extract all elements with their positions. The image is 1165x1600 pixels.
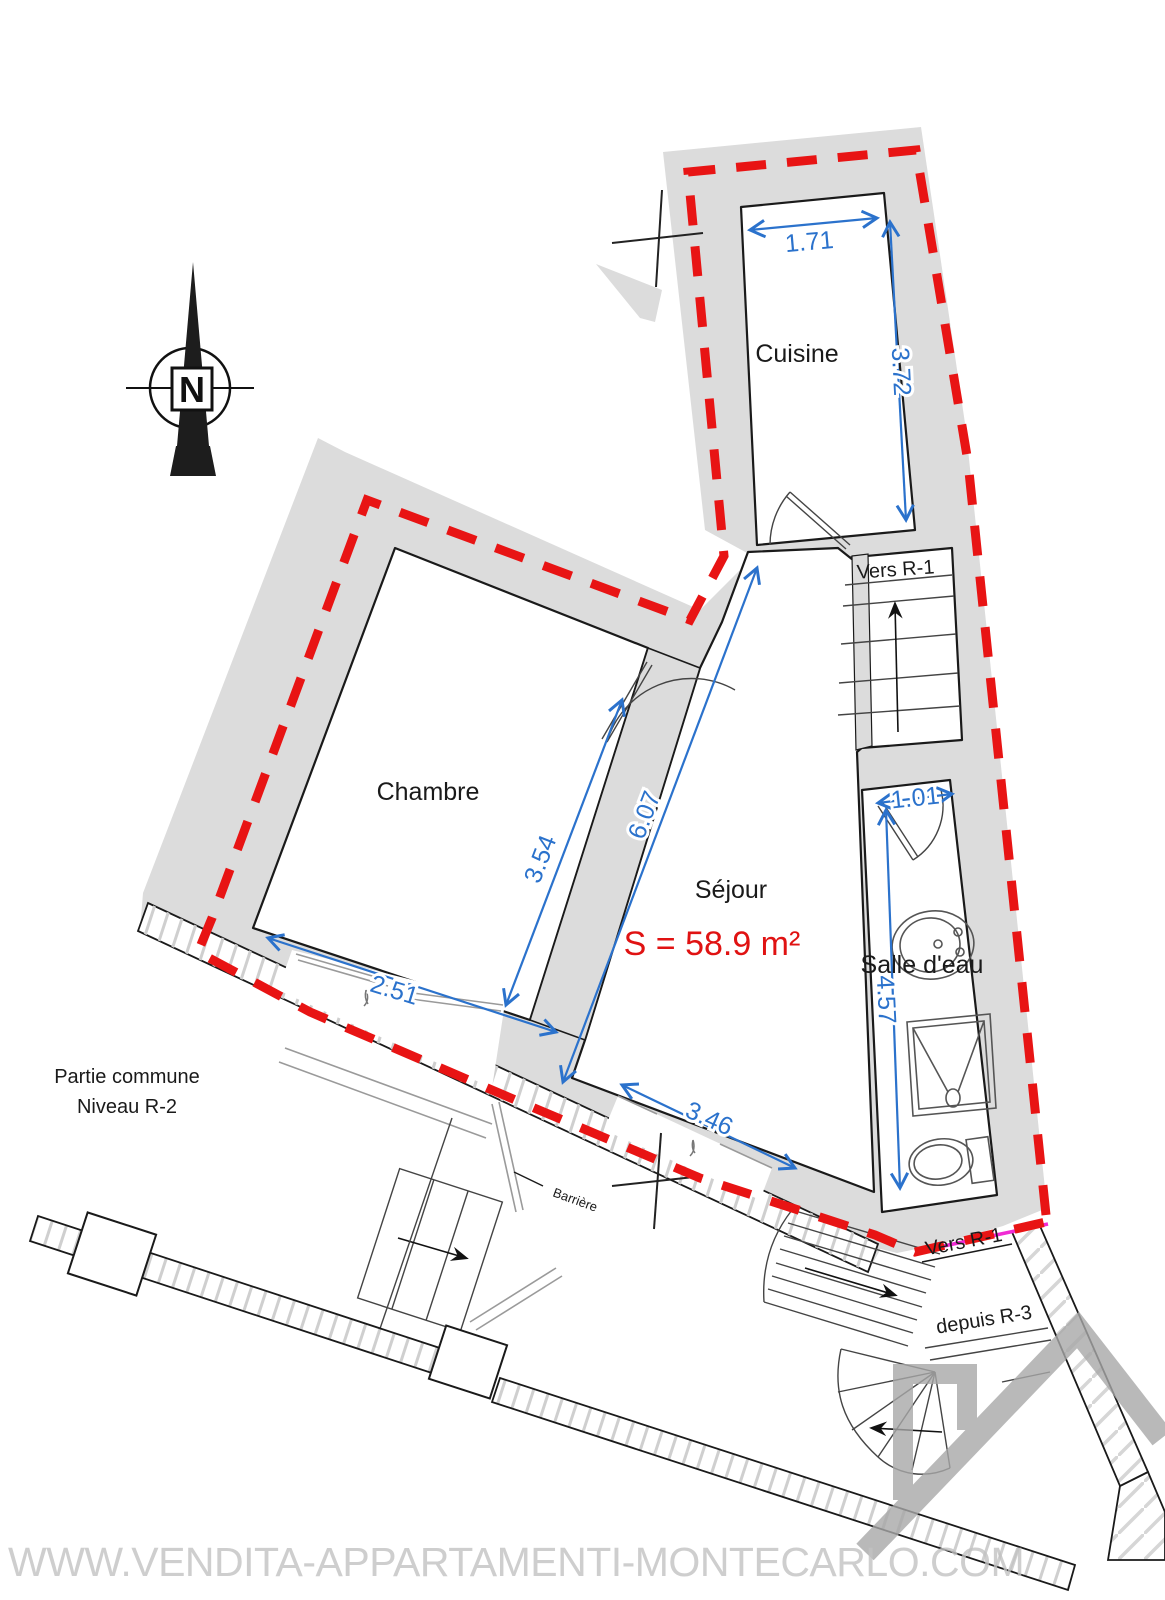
north-compass: N <box>126 262 254 476</box>
rooms <box>253 193 997 1212</box>
compass-needle <box>177 262 209 446</box>
label-cuisine: Cuisine <box>755 340 838 368</box>
label-barriere: Barrière <box>551 1185 600 1215</box>
floor-plan-drawing: 1.71 3.72 3.54 6.07 2.51 1.01 4.57 3.46 … <box>0 0 1165 1600</box>
label-sejour: Séjour <box>695 876 767 904</box>
wall-stub-top <box>596 264 662 322</box>
dim-bath-door: 1.01 <box>889 782 940 815</box>
barriers <box>470 1102 562 1330</box>
watermark-url: WWW.VENDITA-APPARTAMENTI-MONTECARLO.COM <box>8 1539 1024 1585</box>
label-chambre: Chambre <box>377 778 480 806</box>
compass-north-letter: N <box>179 369 205 410</box>
wall-bottom-right-1 <box>1012 1226 1148 1486</box>
floor-plan-page: 1.71 3.72 3.54 6.07 2.51 1.01 4.57 3.46 … <box>0 0 1165 1600</box>
label-area: S = 58.9 m² <box>624 925 801 963</box>
dim-cuisine-depth: 3.72 <box>886 347 917 397</box>
dim-bath-depth: 4.57 <box>871 975 902 1025</box>
corridor-wall-left <box>30 1212 507 1398</box>
label-salle-deau: Salle d'eau <box>861 951 984 979</box>
wall-bottom-right-2 <box>1108 1472 1165 1560</box>
compass-base <box>170 446 216 476</box>
stairs-middle <box>358 1118 503 1352</box>
label-common-2: Niveau R-2 <box>77 1096 177 1118</box>
dim-cuisine-width: 1.71 <box>784 226 835 258</box>
label-common-1: Partie commune <box>54 1066 200 1088</box>
